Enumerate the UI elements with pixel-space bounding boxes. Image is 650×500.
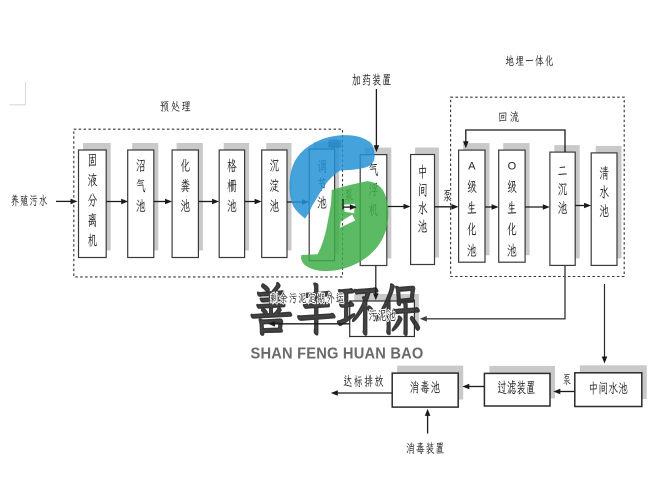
svg-text:O: O	[508, 160, 517, 172]
svg-text:SHAN FENG HUAN BAO: SHAN FENG HUAN BAO	[250, 345, 423, 363]
svg-text:A: A	[468, 160, 476, 172]
